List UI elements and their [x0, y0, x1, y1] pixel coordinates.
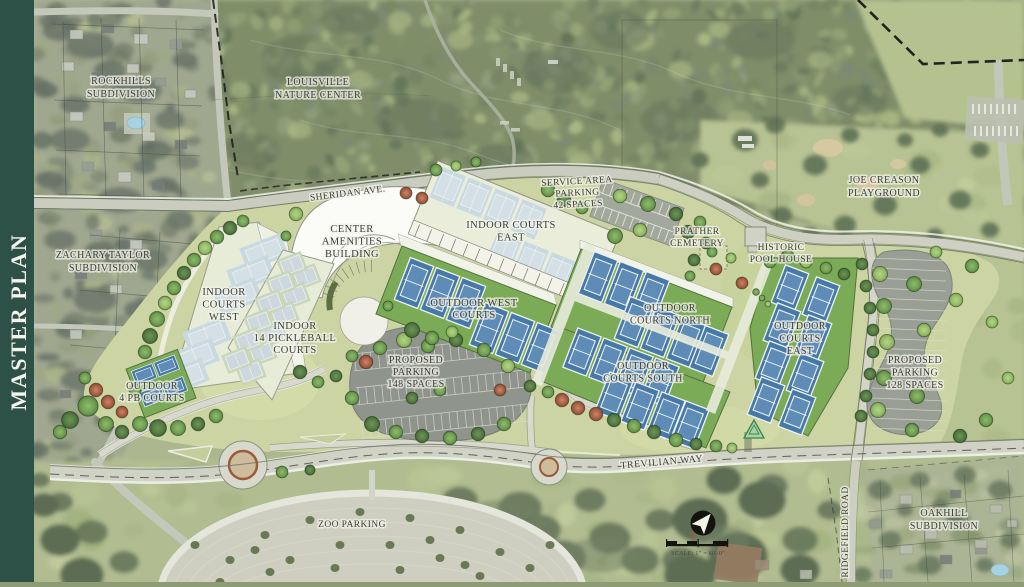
svg-text:128 SPACES: 128 SPACES	[886, 380, 943, 391]
svg-text:HISTORIC: HISTORIC	[758, 243, 805, 253]
svg-text:MASTER PLAN: MASTER PLAN	[6, 233, 31, 410]
svg-text:4 PB COURTS: 4 PB COURTS	[119, 393, 184, 404]
svg-text:OUTDOOR: OUTDOOR	[617, 361, 669, 372]
svg-text:OUTDOOR: OUTDOOR	[126, 381, 178, 392]
svg-text:PROPOSED: PROPOSED	[888, 355, 942, 366]
svg-text:EAST: EAST	[787, 346, 814, 357]
svg-text:PRATHER: PRATHER	[674, 227, 719, 237]
svg-text:14 PICKLEBALL: 14 PICKLEBALL	[254, 333, 337, 344]
svg-text:ZOO PARKING: ZOO PARKING	[318, 520, 386, 530]
svg-text:SUBDIVISION: SUBDIVISION	[87, 89, 155, 100]
svg-text:INDOOR: INDOOR	[273, 321, 316, 332]
svg-text:SUBDIVISION: SUBDIVISION	[910, 521, 978, 532]
svg-text:SCALE: 1" = 60'-0": SCALE: 1" = 60'-0"	[671, 550, 725, 557]
svg-text:INDOOR: INDOOR	[202, 287, 245, 298]
svg-text:COURTS: COURTS	[202, 300, 245, 311]
svg-text:RIDGEFIELD ROAD: RIDGEFIELD ROAD	[841, 486, 851, 577]
svg-text:PLAYGROUND: PLAYGROUND	[848, 188, 920, 199]
svg-text:WEST: WEST	[209, 312, 239, 323]
svg-text:AMENITIES: AMENITIES	[322, 237, 382, 248]
svg-text:COURTS: COURTS	[779, 334, 820, 345]
svg-text:ROCKHILLS: ROCKHILLS	[91, 76, 151, 87]
svg-text:NATURE CENTER: NATURE CENTER	[275, 90, 361, 101]
svg-text:COURTS SOUTH: COURTS SOUTH	[603, 374, 683, 385]
svg-text:OUTDOOR WEST: OUTDOOR WEST	[430, 298, 517, 309]
svg-text:CENTER: CENTER	[330, 224, 373, 235]
svg-text:OUTDOOR: OUTDOOR	[644, 303, 696, 314]
svg-text:BUILDING: BUILDING	[325, 249, 379, 260]
svg-text:COURTS: COURTS	[452, 310, 495, 321]
svg-text:PROPOSED: PROPOSED	[389, 355, 443, 366]
svg-text:OAKHILL: OAKHILL	[920, 508, 967, 519]
svg-text:OUTDOOR: OUTDOOR	[774, 321, 826, 332]
svg-text:PARKING: PARKING	[892, 368, 938, 379]
svg-text:POOL HOUSE: POOL HOUSE	[750, 255, 813, 265]
svg-text:PARKING: PARKING	[393, 367, 439, 378]
svg-text:LOUISVILLE: LOUISVILLE	[287, 77, 349, 88]
svg-text:JOE CREASON: JOE CREASON	[849, 175, 920, 186]
svg-text:INDOOR COURTS: INDOOR COURTS	[466, 220, 555, 231]
svg-text:ZACHARY TAYLOR: ZACHARY TAYLOR	[56, 250, 150, 261]
svg-text:SUBDIVISION: SUBDIVISION	[69, 263, 137, 274]
svg-text:148 SPACES: 148 SPACES	[387, 379, 444, 390]
svg-text:CEMETERY: CEMETERY	[670, 239, 724, 249]
svg-text:EAST: EAST	[497, 233, 525, 244]
svg-text:COURTS NORTH: COURTS NORTH	[630, 316, 710, 327]
svg-text:COURTS: COURTS	[273, 345, 316, 356]
